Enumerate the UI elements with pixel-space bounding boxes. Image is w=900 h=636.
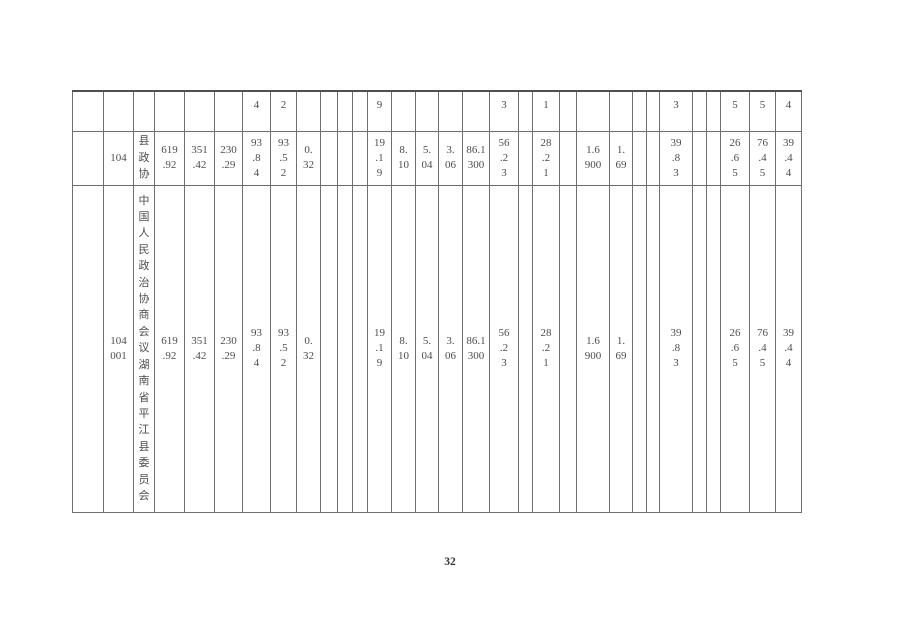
cell-line: 32	[297, 158, 320, 173]
cell-line: 9	[368, 98, 391, 113]
value-cell: 8.10	[392, 131, 416, 185]
cell-line: 300	[463, 349, 489, 364]
cell-line: .92	[155, 158, 184, 173]
cell-line: 4	[776, 98, 801, 113]
cell-line: 19	[368, 136, 391, 151]
cell-line: 93	[271, 136, 296, 151]
value-cell: 351.42	[185, 185, 215, 512]
empty-cell	[519, 131, 533, 185]
cell-line: 1.6	[577, 334, 609, 349]
empty-cell	[647, 185, 660, 512]
cell-line: 3	[490, 356, 518, 371]
cell-line: .2	[533, 341, 559, 356]
cell-line: 0.	[297, 334, 320, 349]
value-cell: 86.1300	[463, 185, 490, 512]
cell-line: 32	[297, 349, 320, 364]
cell-line: .8	[243, 341, 270, 356]
cell-line: 3.	[439, 143, 462, 158]
value-cell: 56.23	[490, 131, 519, 185]
cell-line: .2	[490, 151, 518, 166]
cell-line: 06	[439, 349, 462, 364]
row-carryover-fragments: 429313554	[73, 91, 802, 131]
cell-line: 4	[243, 166, 270, 181]
cell-line: 5	[750, 166, 775, 181]
value-cell: 5.04	[416, 185, 439, 512]
cell-line: 56	[490, 136, 518, 151]
empty-cell	[693, 91, 707, 131]
cell-line: .8	[660, 341, 692, 356]
cell-line: 1	[533, 98, 559, 113]
value-cell: 1.69	[610, 185, 633, 512]
cell-line: .5	[271, 341, 296, 356]
org-name-char: 县	[134, 439, 154, 455]
value-cell: 26.65	[721, 185, 750, 512]
cell-line: 69	[610, 158, 632, 173]
value-cell: 28.21	[533, 131, 560, 185]
value-cell: 0.32	[297, 131, 321, 185]
cell-line: 351	[185, 334, 214, 349]
empty-cell	[338, 91, 353, 131]
value-cell: 93.84	[243, 131, 271, 185]
cell-line: .4	[776, 341, 801, 356]
org-code-cell: 104001	[104, 185, 134, 512]
org-name-char: 委	[134, 455, 154, 471]
cell-line: 2	[271, 166, 296, 181]
value-cell: 4	[776, 91, 802, 131]
cell-line: 001	[104, 349, 133, 364]
cell-line: 56	[490, 326, 518, 341]
cell-line: 04	[416, 158, 438, 173]
cell-line: .6	[721, 341, 749, 356]
cell-line: 230	[215, 143, 242, 158]
value-cell: 26.65	[721, 131, 750, 185]
empty-cell	[353, 185, 368, 512]
org-name-char: 协	[134, 166, 154, 182]
cell-line: 26	[721, 326, 749, 341]
org-name-char: 政	[134, 258, 154, 274]
value-cell: 3	[660, 91, 693, 131]
empty-cell	[707, 91, 721, 131]
cell-line: .29	[215, 349, 242, 364]
cell-line: 39	[776, 326, 801, 341]
empty-cell	[707, 131, 721, 185]
cell-line: 5	[721, 356, 749, 371]
cell-line: 1	[533, 166, 559, 181]
cell-line: .92	[155, 349, 184, 364]
cell-line: .8	[660, 151, 692, 166]
org-name-char: 治	[134, 275, 154, 291]
cell-line: .5	[271, 151, 296, 166]
org-name-char: 民	[134, 242, 154, 258]
value-cell: 3.06	[439, 131, 463, 185]
value-cell: 76.45	[750, 185, 776, 512]
cell-line: 3	[490, 166, 518, 181]
empty-cell	[73, 91, 104, 131]
empty-cell	[693, 131, 707, 185]
value-cell: 5	[721, 91, 750, 131]
value-cell: 2	[271, 91, 297, 131]
empty-cell	[416, 91, 439, 131]
cell-line: 4	[776, 356, 801, 371]
org-name-char: 人	[134, 225, 154, 241]
empty-cell	[707, 185, 721, 512]
cell-line: 104	[104, 151, 133, 166]
value-cell: 1	[533, 91, 560, 131]
value-cell: 86.1300	[463, 131, 490, 185]
empty-cell	[519, 91, 533, 131]
cell-line: .42	[185, 158, 214, 173]
empty-cell	[610, 91, 633, 131]
cell-line: 39	[660, 326, 692, 341]
org-name-char: 协	[134, 291, 154, 307]
org-name-cell: 县政协	[134, 131, 155, 185]
cell-line: 104	[104, 334, 133, 349]
org-code-cell: 104	[104, 131, 134, 185]
cell-line: .2	[490, 341, 518, 356]
empty-cell	[353, 91, 368, 131]
cell-line: 3	[660, 166, 692, 181]
cell-line: 1	[533, 356, 559, 371]
value-cell: 0.32	[297, 185, 321, 512]
cell-line: 93	[243, 326, 270, 341]
cell-line: 900	[577, 158, 609, 173]
cell-line: 1.	[610, 143, 632, 158]
empty-cell	[560, 91, 577, 131]
org-name-char: 会	[134, 488, 154, 504]
empty-cell	[73, 131, 104, 185]
value-cell: 4	[243, 91, 271, 131]
cell-line: .8	[243, 151, 270, 166]
cell-line: 5.	[416, 334, 438, 349]
empty-cell	[633, 91, 647, 131]
cell-line: 9	[368, 356, 391, 371]
empty-cell	[647, 91, 660, 131]
cell-line: 10	[392, 158, 415, 173]
value-cell: 93.52	[271, 131, 297, 185]
value-cell: 56.23	[490, 185, 519, 512]
empty-cell	[647, 131, 660, 185]
empty-cell	[104, 91, 134, 131]
value-cell: 1.6900	[577, 185, 610, 512]
cell-line: 3	[660, 98, 692, 113]
cell-line: 3	[490, 98, 518, 113]
page-number: 32	[0, 556, 900, 568]
empty-cell	[338, 131, 353, 185]
cell-line: 1.	[610, 334, 632, 349]
cell-line: 06	[439, 158, 462, 173]
empty-cell	[577, 91, 610, 131]
value-cell: 1.69	[610, 131, 633, 185]
cell-line: 2	[271, 98, 296, 113]
row-104: 104县政协619.92351.42230.2993.8493.520.3219…	[73, 131, 802, 185]
org-name-char: 议	[134, 340, 154, 356]
cell-line: 619	[155, 143, 184, 158]
value-cell: 1.6900	[577, 131, 610, 185]
value-cell: 5.04	[416, 131, 439, 185]
empty-cell	[338, 185, 353, 512]
cell-line: 76	[750, 136, 775, 151]
cell-line: 4	[243, 98, 270, 113]
cell-line: 5	[721, 166, 749, 181]
org-name-char: 湖	[134, 357, 154, 373]
cell-line: .4	[776, 151, 801, 166]
org-name-char: 政	[134, 150, 154, 166]
cell-line: 5	[721, 98, 749, 113]
budget-table: 429313554104县政协619.92351.42230.2993.8493…	[72, 90, 802, 513]
value-cell: 39.44	[776, 131, 802, 185]
cell-line: 86.1	[463, 334, 489, 349]
org-name-char: 国	[134, 209, 154, 225]
cell-line: 69	[610, 349, 632, 364]
cell-line: 10	[392, 349, 415, 364]
cell-line: 4	[776, 166, 801, 181]
cell-line: 8.	[392, 143, 415, 158]
cell-line: .4	[750, 341, 775, 356]
cell-line: 230	[215, 334, 242, 349]
empty-cell	[633, 131, 647, 185]
value-cell: 39.83	[660, 185, 693, 512]
cell-line: .2	[533, 151, 559, 166]
empty-cell	[693, 185, 707, 512]
empty-cell	[185, 91, 215, 131]
org-name-char: 会	[134, 324, 154, 340]
org-name-char: 省	[134, 390, 154, 406]
org-name-char: 中	[134, 193, 154, 209]
empty-cell	[215, 91, 243, 131]
cell-line: .1	[368, 341, 391, 356]
cell-line: 0.	[297, 143, 320, 158]
cell-line: 76	[750, 326, 775, 341]
value-cell: 19.19	[368, 131, 392, 185]
value-cell: 3	[490, 91, 519, 131]
org-name-char: 员	[134, 472, 154, 488]
org-name-char: 商	[134, 307, 154, 323]
empty-cell	[463, 91, 490, 131]
value-cell: 39.83	[660, 131, 693, 185]
empty-cell	[321, 185, 338, 512]
value-cell: 3.06	[439, 185, 463, 512]
cell-line: 93	[271, 326, 296, 341]
value-cell: 5	[750, 91, 776, 131]
cell-line: 351	[185, 143, 214, 158]
empty-cell	[392, 91, 416, 131]
cell-line: 1.6	[577, 143, 609, 158]
empty-cell	[297, 91, 321, 131]
value-cell: 93.84	[243, 185, 271, 512]
cell-line: .1	[368, 151, 391, 166]
value-cell: 230.29	[215, 131, 243, 185]
cell-line: 300	[463, 158, 489, 173]
cell-line: 4	[243, 356, 270, 371]
empty-cell	[439, 91, 463, 131]
empty-cell	[353, 131, 368, 185]
cell-line: 93	[243, 136, 270, 151]
cell-line: .42	[185, 349, 214, 364]
cell-line: 9	[368, 166, 391, 181]
cell-line: 39	[660, 136, 692, 151]
cell-line: .29	[215, 158, 242, 173]
empty-cell	[560, 131, 577, 185]
value-cell: 9	[368, 91, 392, 131]
value-cell: 28.21	[533, 185, 560, 512]
empty-cell	[560, 185, 577, 512]
cell-line: 86.1	[463, 143, 489, 158]
cell-line: 5	[750, 356, 775, 371]
value-cell: 93.52	[271, 185, 297, 512]
org-name-cell: 中国人民政治协商会议湖南省平江县委员会	[134, 185, 155, 512]
empty-cell	[155, 91, 185, 131]
cell-line: 619	[155, 334, 184, 349]
value-cell: 351.42	[185, 131, 215, 185]
empty-cell	[321, 131, 338, 185]
row-104001: 104001中国人民政治协商会议湖南省平江县委员会619.92351.42230…	[73, 185, 802, 512]
value-cell: 76.45	[750, 131, 776, 185]
org-name-char: 南	[134, 373, 154, 389]
value-cell: 619.92	[155, 185, 185, 512]
cell-line: .4	[750, 151, 775, 166]
cell-line: 5	[750, 98, 775, 113]
cell-line: 28	[533, 136, 559, 151]
empty-cell	[519, 185, 533, 512]
cell-line: 3.	[439, 334, 462, 349]
cell-line: 2	[271, 356, 296, 371]
empty-cell	[134, 91, 155, 131]
value-cell: 8.10	[392, 185, 416, 512]
cell-line: 3	[660, 356, 692, 371]
document-page: 429313554104县政协619.92351.42230.2993.8493…	[0, 0, 900, 636]
cell-line: 04	[416, 349, 438, 364]
cell-line: 900	[577, 349, 609, 364]
empty-cell	[73, 185, 104, 512]
org-name-char: 平	[134, 406, 154, 422]
cell-line: 26	[721, 136, 749, 151]
cell-line: 28	[533, 326, 559, 341]
org-name-char: 县	[134, 133, 154, 149]
cell-line: 19	[368, 326, 391, 341]
cell-line: 5.	[416, 143, 438, 158]
value-cell: 619.92	[155, 131, 185, 185]
cell-line: 39	[776, 136, 801, 151]
empty-cell	[321, 91, 338, 131]
org-name-char: 江	[134, 422, 154, 438]
value-cell: 230.29	[215, 185, 243, 512]
value-cell: 39.44	[776, 185, 802, 512]
cell-line: 8.	[392, 334, 415, 349]
value-cell: 19.19	[368, 185, 392, 512]
cell-line: .6	[721, 151, 749, 166]
empty-cell	[633, 185, 647, 512]
